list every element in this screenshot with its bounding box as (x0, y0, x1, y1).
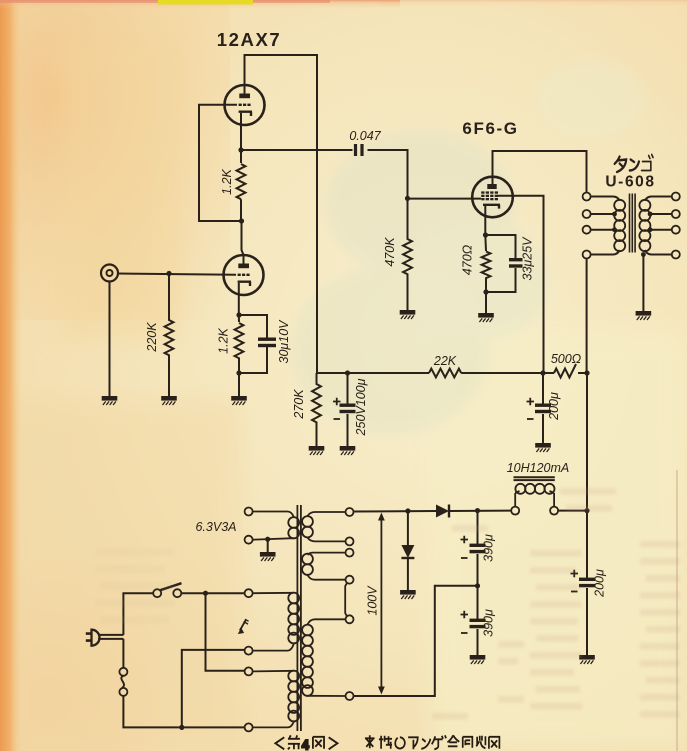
svg-text:6.3V3A: 6.3V3A (195, 520, 236, 534)
svg-text:6F6-G: 6F6-G (462, 119, 518, 138)
svg-text:33μ25V: 33μ25V (521, 236, 535, 281)
svg-text:200μ: 200μ (593, 569, 607, 598)
svg-text:1.2K: 1.2K (217, 327, 231, 353)
svg-text:30μ10V: 30μ10V (277, 319, 291, 364)
svg-text:270K: 270K (292, 389, 306, 420)
svg-text:220K: 220K (145, 322, 159, 353)
svg-text:390μ: 390μ (482, 534, 496, 562)
svg-text:22K: 22K (433, 354, 457, 368)
svg-text:100V: 100V (366, 585, 380, 616)
svg-text:470K: 470K (383, 237, 397, 267)
svg-text:500Ω: 500Ω (551, 352, 582, 366)
svg-text:10H120mA: 10H120mA (507, 461, 570, 475)
svg-text:0.047: 0.047 (349, 129, 381, 143)
svg-text:470Ω: 470Ω (461, 244, 475, 275)
svg-text:390μ: 390μ (482, 609, 496, 637)
svg-text:4: 4 (302, 737, 310, 751)
svg-text:200μ: 200μ (547, 392, 561, 421)
svg-text:12AX7: 12AX7 (217, 29, 282, 50)
svg-text:1.2K: 1.2K (220, 168, 234, 194)
svg-text:250V100μ: 250V100μ (354, 378, 368, 436)
svg-text:U-608: U-608 (605, 174, 655, 191)
